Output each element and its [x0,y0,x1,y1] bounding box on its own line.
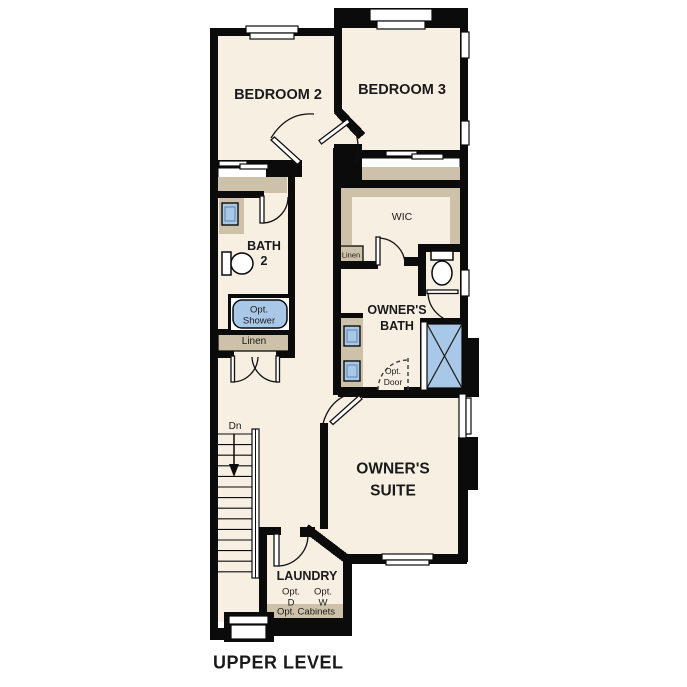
bedroom2-closet-shelf [218,177,287,193]
label-opt-door-line2: Door [384,378,402,387]
bedroom3-side-window-1 [461,32,469,58]
bedroom3-closet-track [360,158,460,168]
label-opt-door-line1: Opt. [385,367,401,376]
room-label-laundry: LAUNDRY [277,570,338,583]
label-opt-dryer-line1: Opt. [282,587,300,597]
label-opt-shower-line1: Opt. [250,305,268,315]
floor-plan: BEDROOM 2 BEDROOM 3 BATH 2 WIC Linen Lin… [0,0,687,687]
label-stairs-down: Dn [229,422,242,432]
bedroom2-window [246,26,298,39]
bedroom3-bay-window [370,9,432,29]
floor-plan-drawing [0,0,687,687]
bath2-sink-icon [222,203,238,225]
owners-shower [421,322,462,390]
room-label-bedroom2: BEDROOM 2 [234,88,322,103]
owners-suite-side-window [459,394,471,438]
bedroom3-closet-shelf [360,167,460,181]
room-label-bath2-line2: 2 [261,255,268,268]
wic-shelf-right [450,187,461,245]
label-linen-hall: Linen [242,337,266,347]
room-label-wic: WIC [392,212,412,223]
page-title: UPPER LEVEL [213,653,344,674]
owners-suite-rear-window [382,554,433,565]
bedroom3-side-window-2 [461,121,469,145]
wic-shelf-left [340,187,352,245]
toilet-room-window [461,270,469,296]
room-label-owners-suite-line2: SUITE [370,483,416,499]
owners-bath-sink-icon-1 [344,326,360,346]
bath2-toilet-icon [222,252,253,275]
wic-shelf-top [340,187,460,197]
label-opt-shower-line2: Shower [243,316,275,326]
label-linen-bath: Linen [342,251,360,259]
owners-toilet-icon [431,251,453,285]
owners-bath-sink-icon-2 [344,361,360,381]
room-label-bath2-line1: BATH [247,240,281,253]
room-label-bedroom3: BEDROOM 3 [358,83,446,98]
room-label-owners-bath-line2: BATH [380,320,414,333]
label-opt-washer-line1: Opt. [314,587,332,597]
label-opt-cabinets: Opt. Cabinets [277,607,335,617]
room-label-owners-bath-line1: OWNER'S [367,304,426,317]
stair-rail [252,429,259,578]
stair-landing-window [229,616,268,639]
room-label-owners-suite-line1: OWNER'S [356,461,429,477]
